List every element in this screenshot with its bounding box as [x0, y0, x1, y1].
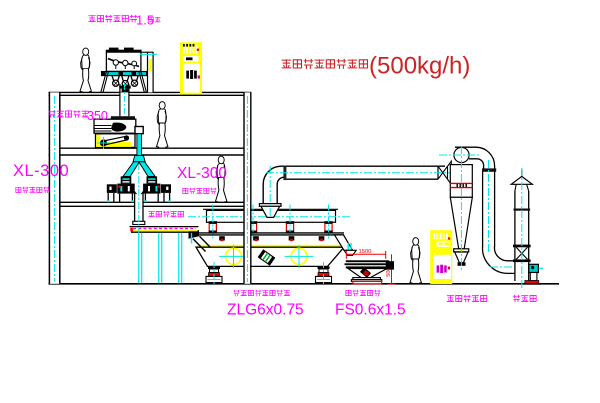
svg-text:XL-300: XL-300 [177, 165, 227, 182]
svg-text:1500: 1500 [359, 249, 372, 255]
svg-text:FS0.6x1.5: FS0.6x1.5 [335, 302, 406, 319]
svg-text:(500kg/h): (500kg/h) [369, 53, 470, 80]
svg-text:350: 350 [87, 109, 108, 123]
svg-text:1.5: 1.5 [136, 13, 154, 28]
svg-text:XL-300: XL-300 [13, 162, 69, 180]
svg-text:ZLG6x0.75: ZLG6x0.75 [227, 302, 304, 319]
